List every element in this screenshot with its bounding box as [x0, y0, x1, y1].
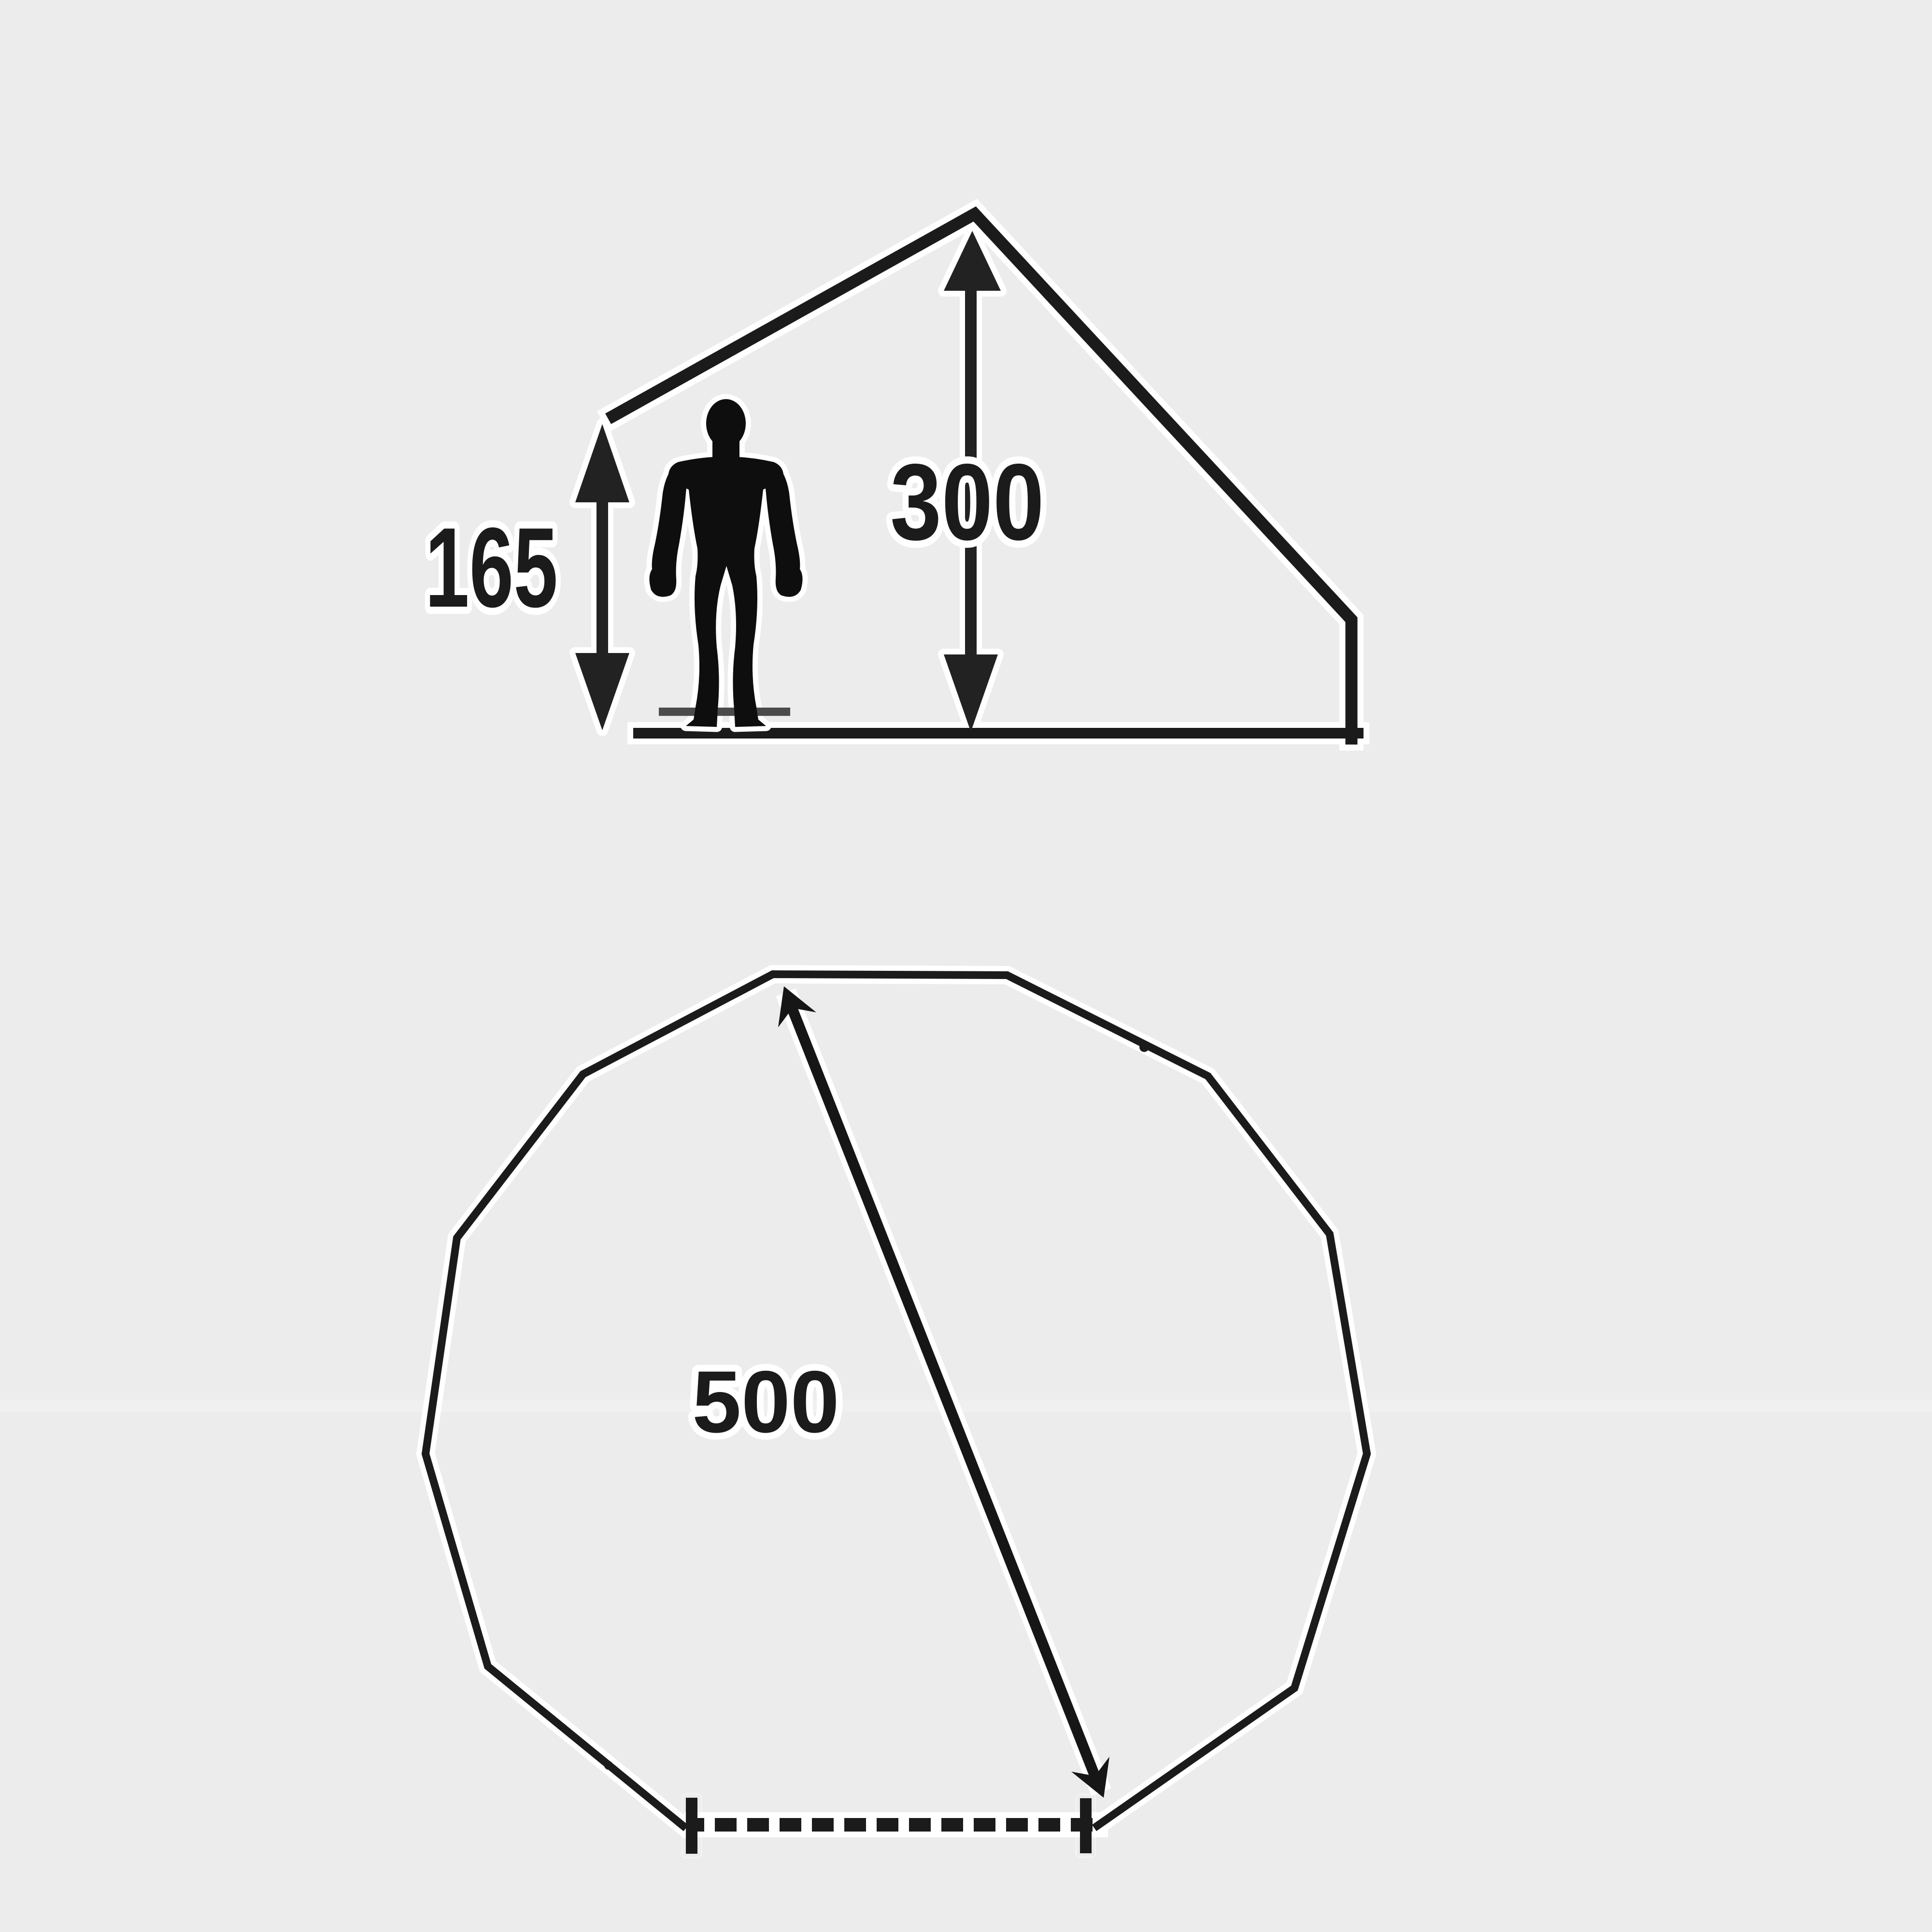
edge-blemish-dot — [604, 1761, 613, 1770]
tent-dimension-sheet: 300 165 — [0, 0, 1932, 1932]
diameter-label: 500 — [692, 1352, 839, 1451]
tent-dimension-diagram: 300 165 — [0, 0, 1932, 1932]
eave-height-label: 165 — [425, 504, 558, 631]
peak-height-label: 300 — [890, 441, 1044, 563]
edge-blemish-dot — [1139, 1042, 1149, 1052]
door-tick-left — [686, 1798, 697, 1854]
door-tick-right — [1080, 1798, 1092, 1853]
figure-base-plate — [659, 708, 790, 716]
background-seam-band — [0, 1400, 1932, 1412]
